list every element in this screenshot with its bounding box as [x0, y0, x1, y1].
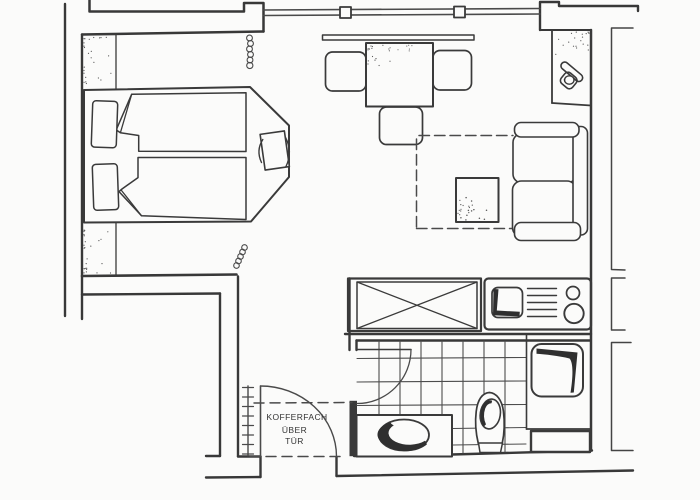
svg-text:KOFFERFACH: KOFFERFACH [266, 412, 327, 422]
svg-text:ÜBER: ÜBER [282, 425, 307, 435]
svg-text:TÜR: TÜR [285, 436, 304, 446]
